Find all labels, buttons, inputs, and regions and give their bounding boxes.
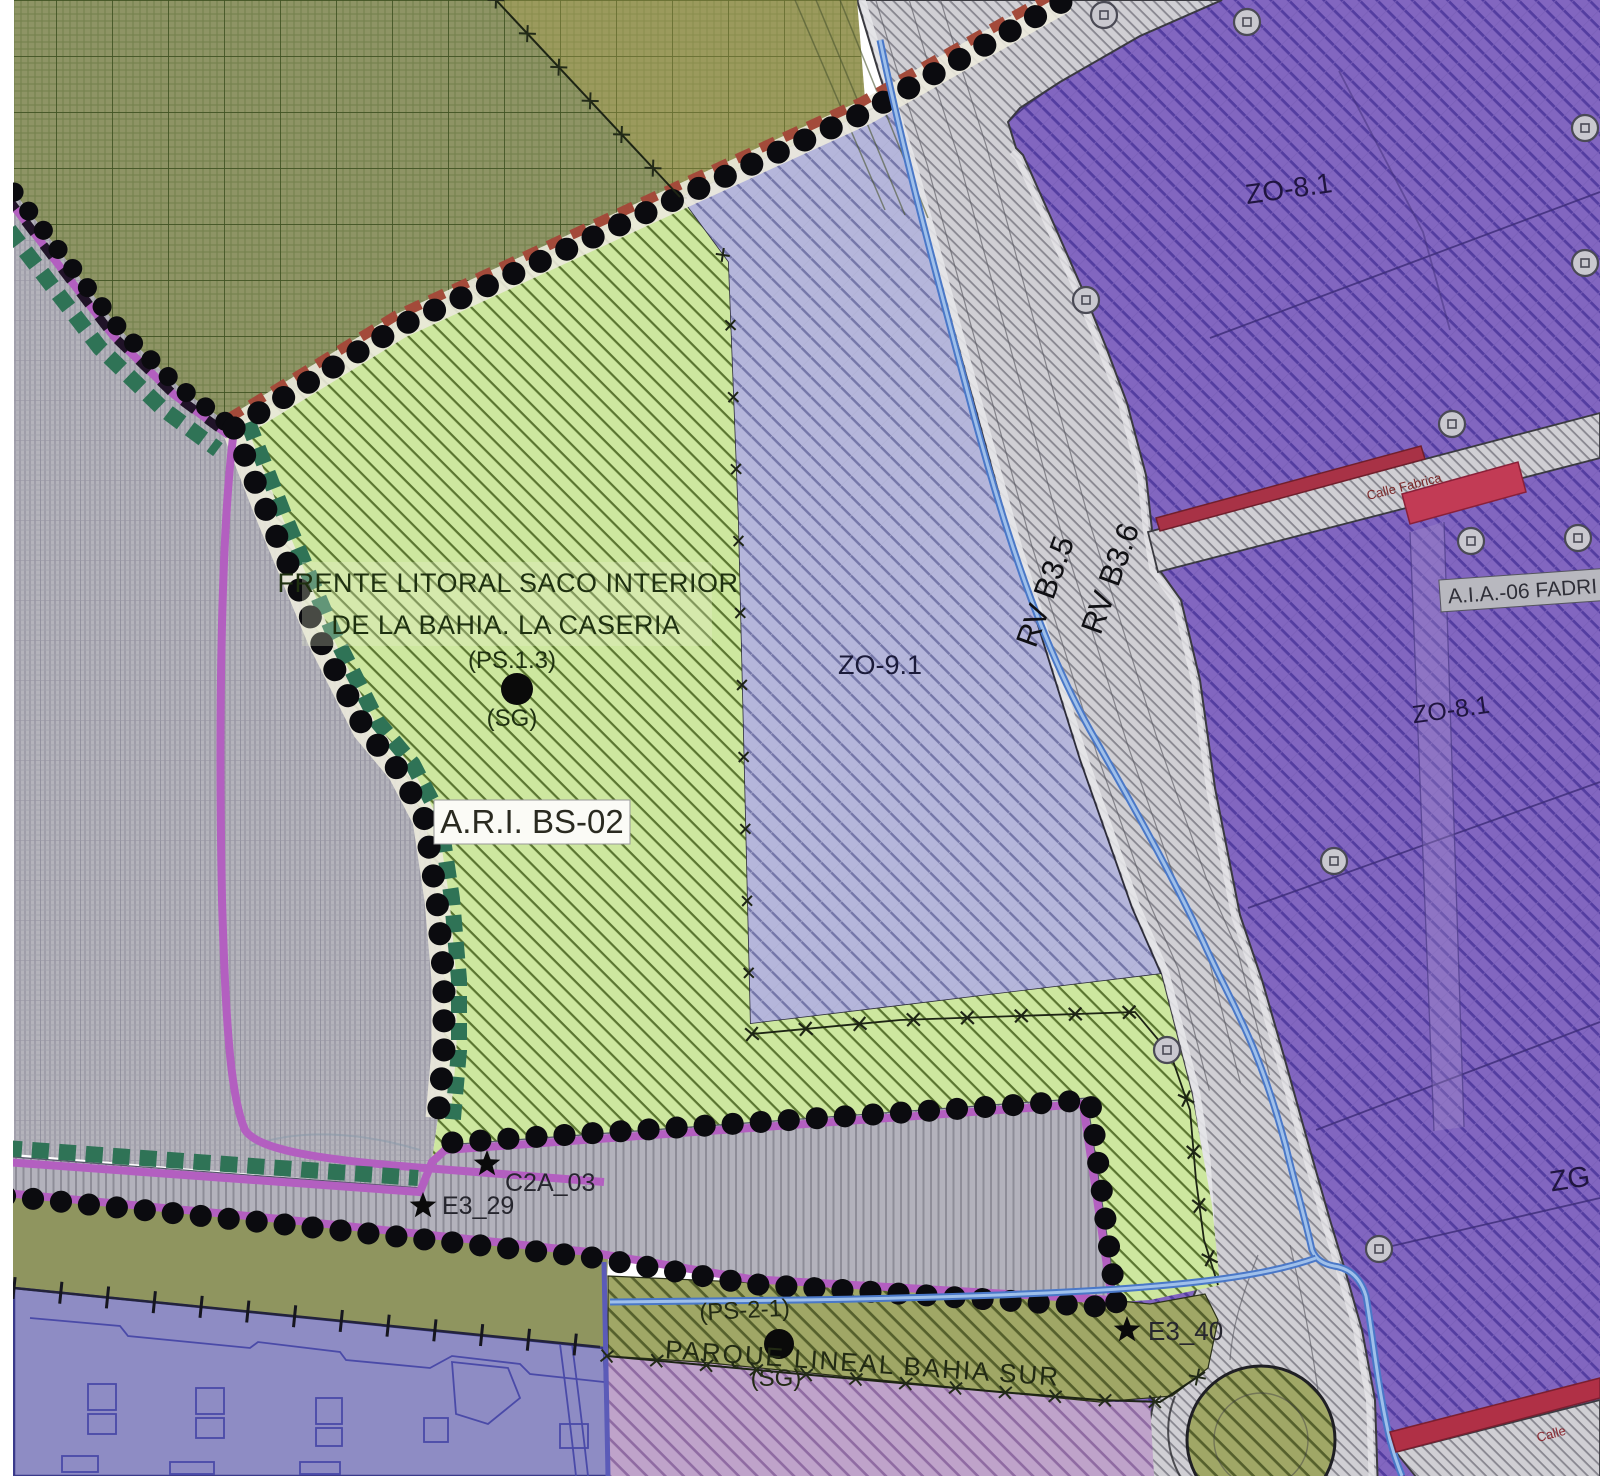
svg-text:ZG: ZG bbox=[1548, 1161, 1593, 1199]
svg-text:C2A_03: C2A_03 bbox=[505, 1169, 595, 1197]
svg-text:A.R.I. BS-02: A.R.I. BS-02 bbox=[440, 803, 623, 840]
svg-text:(SG): (SG) bbox=[487, 705, 538, 732]
svg-text:(PS-2-1): (PS-2-1) bbox=[699, 1295, 791, 1327]
svg-text:FRENTE LITORAL SACO INTERIOR: FRENTE LITORAL SACO INTERIOR bbox=[277, 568, 738, 598]
svg-text:(PS.1.3): (PS.1.3) bbox=[468, 647, 556, 674]
svg-text:DE LA BAHIA. LA CASERIA: DE LA BAHIA. LA CASERIA bbox=[331, 610, 680, 640]
svg-text:ZO-9.1: ZO-9.1 bbox=[838, 650, 922, 680]
svg-text:E3_40: E3_40 bbox=[1148, 1316, 1223, 1346]
svg-text:E3_29: E3_29 bbox=[442, 1192, 514, 1220]
